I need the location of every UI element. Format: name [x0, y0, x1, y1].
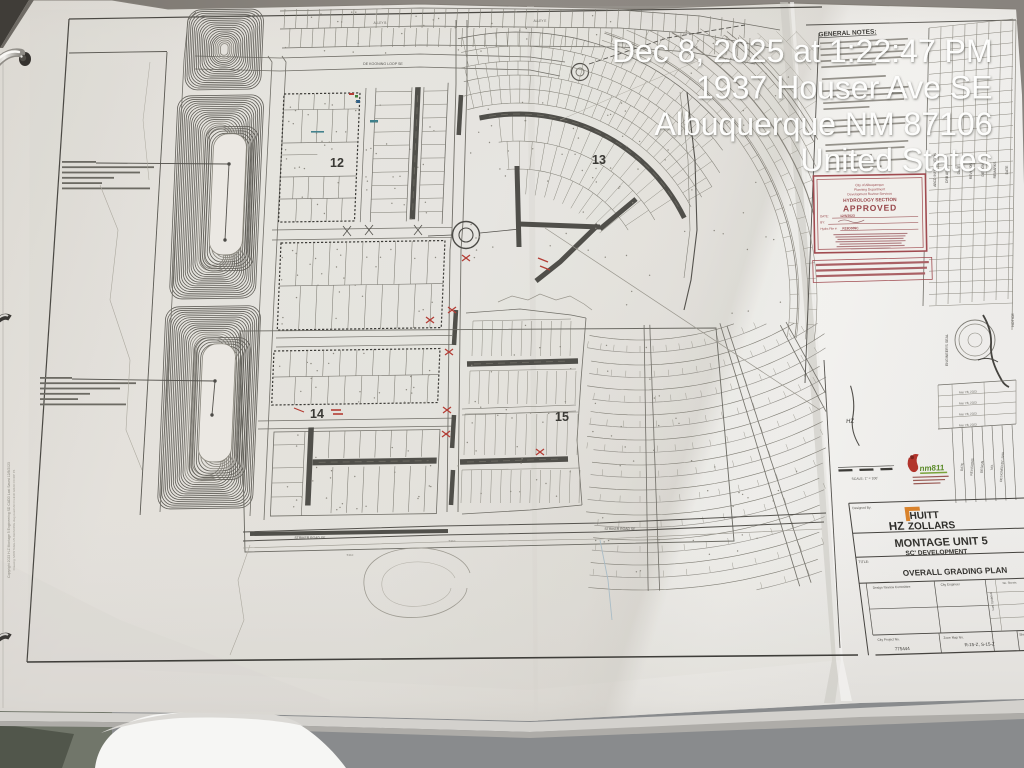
svg-text:DE KOONING LOOP SE: DE KOONING LOOP SE — [363, 62, 403, 66]
svg-text:Copyright 2023 H-Z Montage 5: Copyright 2023 H-Z Montage 5 Engineering… — [7, 462, 11, 578]
svg-text:No. Sheets: No. Sheets — [1002, 581, 1017, 585]
svg-text:ENGINEER'S SEAL: ENGINEER'S SEAL — [945, 334, 949, 366]
svg-text:DATE:: DATE: — [820, 214, 829, 218]
svg-text:HZ: HZ — [888, 521, 905, 533]
svg-text:NOTICE: NOTICE — [1011, 313, 1015, 327]
svg-text:United States: United States — [800, 142, 992, 178]
svg-text:ALLEY B: ALLEY B — [374, 21, 387, 25]
svg-text:City Engineer: City Engineer — [940, 582, 961, 587]
svg-text:Development Review Services: Development Review Services — [847, 192, 892, 197]
svg-text:SCALE: 1" = 100': SCALE: 1" = 100' — [851, 476, 878, 481]
svg-text:Dec 8, 2025 at 1:22:47 PM: Dec 8, 2025 at 1:22:47 PM — [612, 33, 993, 69]
svg-text:5310: 5310 — [449, 539, 456, 543]
svg-text:nm811: nm811 — [919, 463, 945, 473]
svg-text:ALLEY E: ALLEY E — [534, 19, 547, 23]
svg-text:STRIKER ROAD SE: STRIKER ROAD SE — [605, 527, 637, 531]
svg-text:HZ: HZ — [846, 419, 855, 425]
svg-text:14: 14 — [310, 407, 324, 421]
svg-text:APPROVED: APPROVED — [843, 203, 897, 214]
svg-text:Sheet: Sheet — [1019, 632, 1024, 636]
svg-text:City Project No.: City Project No. — [877, 637, 900, 642]
svg-text:ZOLLARS: ZOLLARS — [907, 520, 956, 532]
svg-text:REMARKS: REMARKS — [993, 161, 997, 179]
svg-text:DATE: DATE — [960, 463, 965, 472]
svg-text:Zone Map No.: Zone Map No. — [943, 635, 964, 640]
svg-text:12: 12 — [330, 156, 344, 170]
svg-text:Drawing: MONTAGE-U5-GRADING.dw: Drawing: MONTAGE-U5-GRADING.dwg AutoCAD … — [12, 469, 16, 570]
svg-text:R-15-Z, S-15-Z: R-15-Z, S-15-Z — [964, 641, 995, 647]
svg-text:12/5/2023: 12/5/2023 — [840, 214, 855, 218]
svg-text:775444: 775444 — [894, 646, 910, 651]
svg-text:STRIKER ROAD SE: STRIKER ROAD SE — [295, 536, 327, 540]
svg-text:Designed By:: Designed By: — [852, 506, 872, 511]
svg-text:13: 13 — [592, 153, 606, 167]
svg-text:R19D009C: R19D009C — [842, 226, 859, 230]
svg-text:NO.: NO. — [990, 464, 994, 470]
svg-text:5310: 5310 — [347, 553, 354, 557]
svg-text:15: 15 — [555, 410, 569, 424]
svg-text:Hydro.File #:: Hydro.File #: — [820, 227, 837, 231]
svg-text:1937 Houser Ave SE: 1937 Houser Ave SE — [696, 70, 993, 106]
svg-text:DATE: DATE — [1005, 165, 1009, 175]
svg-text:Albuquerque NM 87106: Albuquerque NM 87106 — [654, 106, 992, 142]
svg-text:BY:: BY: — [820, 220, 825, 224]
svg-text:TITLE:: TITLE: — [858, 560, 869, 564]
